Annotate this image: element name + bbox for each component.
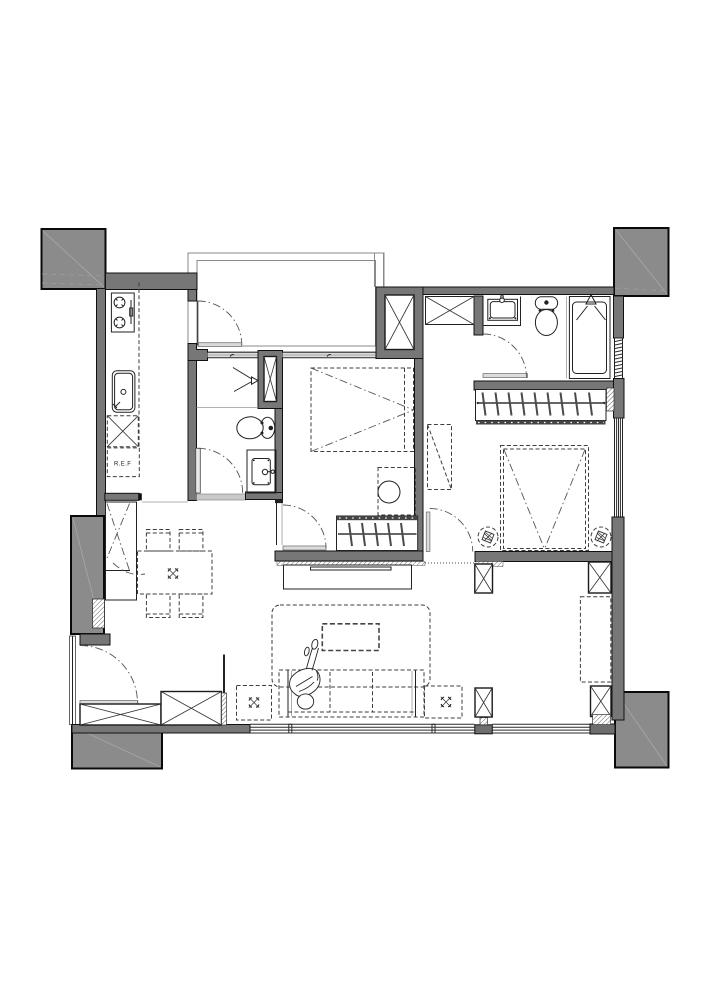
svg-text:R.E.F: R.E.F xyxy=(114,462,131,468)
